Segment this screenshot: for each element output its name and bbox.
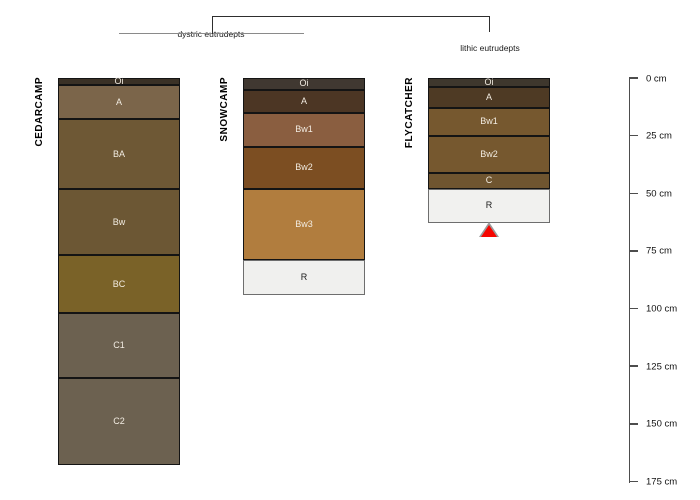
soil-profile-plot: dystric eutrudepts lithic eutrudepts CED… [0,0,700,500]
depth-tick-label: 175 cm [646,476,677,487]
depth-tick-label: 50 cm [646,188,672,199]
horizon-snowcamp-r: R [243,260,365,295]
horizon-snowcamp-bw3: Bw3 [243,189,365,260]
dendrogram-stem-lithic [489,16,490,33]
depth-tick [629,250,638,252]
horizon-cedarcamp-ba: BA [58,119,180,188]
depth-tick [629,423,638,425]
horizon-flycatcher-oi: Oi [428,78,550,87]
depth-tick [629,77,638,79]
horizon-label: C2 [113,418,125,425]
horizon-label: BA [113,151,125,158]
horizon-label: BC [113,281,126,288]
horizon-label: Bw3 [295,221,313,228]
horizon-cedarcamp-oi: Oi [58,78,180,85]
horizon-cedarcamp-c1: C1 [58,313,180,378]
horizon-label: A [486,94,492,101]
horizon-flycatcher-r: R [428,189,550,224]
horizon-label: Oi [485,79,494,86]
horizon-snowcamp-bw2: Bw2 [243,147,365,188]
horizon-cedarcamp-c2: C2 [58,378,180,466]
horizon-flycatcher-a: A [428,87,550,108]
depth-tick-label: 100 cm [646,304,677,315]
depth-tick-label: 0 cm [646,73,667,84]
horizon-label: Bw1 [295,126,313,133]
horizon-cedarcamp-a: A [58,85,180,120]
horizon-flycatcher-c: C [428,173,550,189]
dendrogram-stem-dystric [212,16,213,35]
horizon-flycatcher-bw1: Bw1 [428,108,550,136]
horizon-label: A [301,98,307,105]
profile-id-flycatcher: FLYCATCHER [404,77,415,148]
horizon-label: Bw [113,219,126,226]
horizon-label: Bw2 [295,164,313,171]
dendrogram-root-line [212,16,491,17]
depth-tick [629,481,638,483]
profile-id-cedarcamp: CEDARCAMP [34,77,45,147]
depth-tick-label: 75 cm [646,246,672,257]
horizon-label: Bw1 [480,118,498,125]
horizon-label: R [301,274,308,281]
dendrogram-group-label-lithic-eutrudepts: lithic eutrudepts [460,43,520,53]
depth-tick-label: 125 cm [646,361,677,372]
depth-tick [629,365,638,367]
horizon-snowcamp-bw1: Bw1 [243,113,365,148]
depth-tick [629,308,638,310]
horizon-label: Oi [115,78,124,85]
horizon-flycatcher-bw2: Bw2 [428,136,550,173]
horizon-snowcamp-a: A [243,90,365,113]
horizon-label: Oi [300,80,309,87]
profile-id-snowcamp: SNOWCAMP [219,77,230,142]
depth-tick [629,135,638,137]
red-triangle-marker [481,225,497,237]
horizon-label: C1 [113,342,125,349]
horizon-label: R [486,202,493,209]
horizon-label: Bw2 [480,151,498,158]
horizon-label: C [486,177,493,184]
depth-tick [629,193,638,195]
horizon-cedarcamp-bc: BC [58,255,180,313]
horizon-cedarcamp-bw: Bw [58,189,180,256]
horizon-snowcamp-oi: Oi [243,78,365,90]
horizon-label: A [116,99,122,106]
depth-tick-label: 25 cm [646,131,672,142]
depth-tick-label: 150 cm [646,419,677,430]
